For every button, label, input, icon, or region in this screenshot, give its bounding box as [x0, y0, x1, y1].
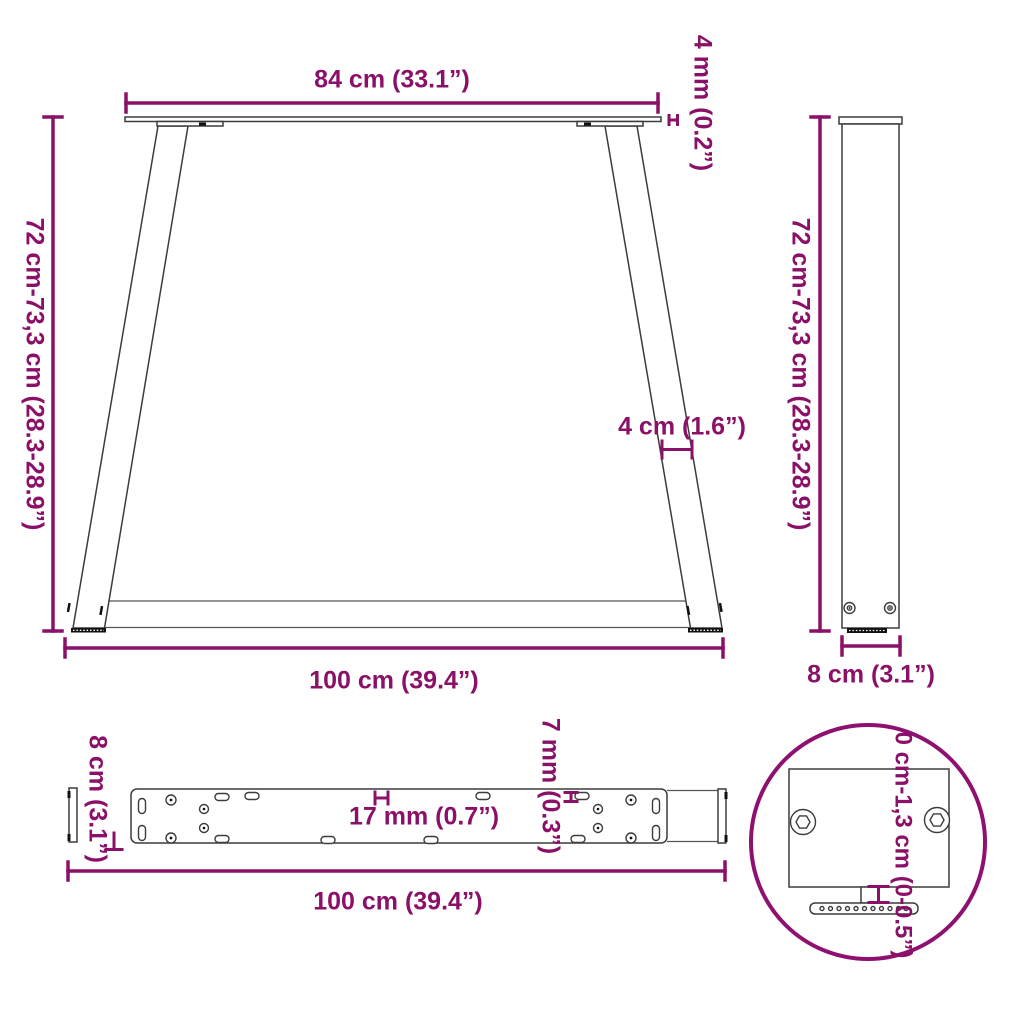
- front-bottom-width-label: 100 cm (39.4”): [309, 667, 479, 695]
- plate-slot: [653, 826, 660, 841]
- plate-slot: [215, 794, 229, 801]
- weld-mark: [67, 603, 71, 612]
- front-height-label: 72 cm-73,3 cm (28.3-28.9”): [20, 218, 48, 531]
- detail-adjustment-label: 0 cm-1,3 cm (0-0.5”): [890, 732, 917, 959]
- front-left-foot: [71, 628, 106, 633]
- plate-slot: [245, 793, 259, 800]
- detail-hex-screw-left: [791, 810, 816, 835]
- side-top-cap: [839, 117, 902, 124]
- plate-slot: [653, 799, 660, 814]
- front-left-leg: [73, 126, 188, 628]
- top-hole-offset-label: 7 mm (0.3”): [536, 718, 564, 854]
- plate-slot: [215, 836, 229, 843]
- detail-view: 0 cm-1,3 cm (0-0.5”): [751, 725, 985, 959]
- front-leg-width-label: 4 cm (1.6”): [618, 413, 746, 441]
- plate-slot: [476, 793, 490, 800]
- top-depth-label: 8 cm (3.1”): [83, 735, 111, 863]
- top-view: 8 cm (3.1”): [68, 718, 728, 916]
- plate-slot: [321, 837, 335, 844]
- side-foot: [847, 628, 887, 633]
- front-plate-thickness-label: 4 mm (0.2”): [688, 35, 716, 171]
- top-length-label: 100 cm (39.4”): [313, 888, 483, 916]
- front-right-leg: [605, 126, 722, 628]
- detail-adjuster-stem: [861, 887, 878, 903]
- top-length-dimension: 100 cm (39.4”): [68, 862, 725, 916]
- top-hole-spacing-label: 17 mm (0.7”): [349, 803, 499, 831]
- side-screw-left: [844, 603, 855, 614]
- front-bottom-width-dimension: 100 cm (39.4”): [65, 639, 723, 695]
- front-top-width-label: 84 cm (33.1”): [314, 66, 470, 94]
- front-plate-thickness-dimension: 4 mm (0.2”): [669, 35, 716, 171]
- front-top-width-dimension: 84 cm (33.1”): [126, 66, 658, 112]
- side-height-label: 72 cm-73,3 cm (28.3-28.9”): [786, 218, 814, 531]
- side-leg-body: [842, 124, 899, 628]
- bracket-bolt: [199, 123, 206, 126]
- plate-slot: [571, 836, 585, 843]
- plate-slot: [139, 799, 146, 814]
- side-view: 72 cm-73,3 cm (28.3-28.9”) 8 cm (3.1”): [786, 117, 935, 689]
- front-bottom-crossbar: [104, 601, 690, 628]
- detail-hex-screw-right: [925, 808, 950, 833]
- front-left-bracket: [157, 122, 223, 127]
- bracket-bolt: [584, 123, 591, 126]
- dimension-diagram: 84 cm (33.1”): [0, 0, 1024, 1024]
- side-depth-label: 8 cm (3.1”): [807, 661, 935, 689]
- side-screw-right: [885, 603, 896, 614]
- front-view: 84 cm (33.1”): [20, 35, 746, 695]
- side-height-dimension: 72 cm-73,3 cm (28.3-28.9”): [786, 117, 829, 631]
- top-right-foot-strip: [718, 789, 728, 843]
- side-depth-dimension: 8 cm (3.1”): [807, 637, 935, 689]
- front-height-dimension: 72 cm-73,3 cm (28.3-28.9”): [20, 117, 62, 631]
- front-right-foot: [688, 628, 723, 633]
- top-depth-dimension: 8 cm (3.1”): [83, 735, 122, 863]
- top-left-foot-strip: [68, 788, 78, 842]
- plate-slot: [139, 826, 146, 841]
- plate-slot: [424, 837, 438, 844]
